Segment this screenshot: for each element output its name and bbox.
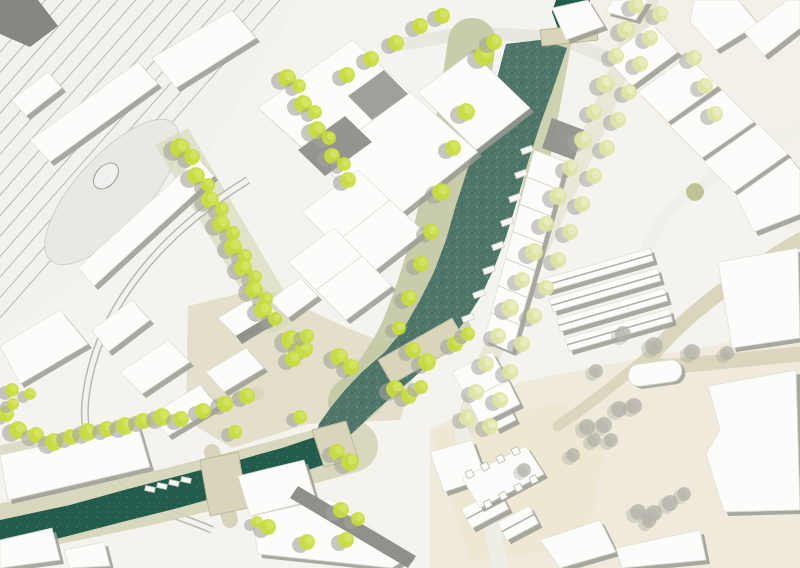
- tree-highlight: [34, 429, 42, 437]
- tree-highlight: [568, 226, 576, 234]
- tree-highlight: [342, 159, 349, 166]
- tree-highlight: [634, 0, 642, 8]
- tree: [587, 433, 601, 447]
- tree-highlight: [243, 251, 250, 258]
- tree-highlight: [411, 344, 419, 352]
- tree-highlight: [313, 107, 320, 114]
- tree-highlight: [429, 226, 437, 234]
- tree-highlight: [233, 427, 240, 434]
- tree-highlight: [346, 174, 354, 182]
- tree-highlight: [10, 385, 17, 392]
- tree-highlight: [627, 86, 635, 94]
- tree-highlight: [498, 394, 506, 402]
- tree: [677, 487, 691, 501]
- tree: [615, 326, 631, 342]
- tree: [720, 346, 734, 360]
- tree-highlight: [201, 405, 209, 413]
- tree-highlight: [241, 261, 250, 270]
- tree-highlight: [219, 217, 228, 226]
- tree-highlight: [419, 258, 427, 266]
- tree-highlight: [465, 412, 473, 420]
- tree-highlight: [330, 150, 338, 158]
- tree-highlight: [231, 240, 240, 249]
- tree-highlight: [703, 80, 711, 88]
- tree-highlight: [285, 71, 294, 80]
- tree-highlight: [339, 504, 347, 512]
- tree-highlight: [605, 142, 613, 150]
- tree: [684, 344, 700, 360]
- tree: [589, 364, 603, 378]
- tree-highlight: [624, 23, 633, 32]
- tree-highlight: [419, 382, 426, 389]
- tree-highlight: [327, 133, 334, 140]
- tree-highlight: [305, 331, 312, 338]
- tree-highlight: [349, 361, 357, 369]
- tree-highlight: [451, 142, 459, 150]
- tree: [596, 417, 612, 433]
- tree-highlight: [568, 162, 576, 170]
- tree-highlight: [220, 204, 227, 211]
- tree-highlight: [508, 366, 516, 374]
- tree: [645, 337, 663, 355]
- tree-highlight: [556, 254, 564, 262]
- tree-highlight: [345, 69, 353, 77]
- tree-highlight: [544, 282, 552, 290]
- tree-highlight: [581, 133, 590, 142]
- building: [706, 370, 800, 512]
- tree-highlight: [261, 303, 270, 312]
- tree-highlight: [638, 58, 646, 66]
- tree-highlight: [425, 355, 434, 364]
- tree-highlight: [397, 323, 404, 330]
- tree-highlight: [335, 446, 343, 454]
- tree-highlight: [603, 77, 612, 86]
- tree-highlight: [337, 350, 346, 359]
- tree: [626, 398, 642, 414]
- tree-highlight: [393, 382, 402, 391]
- tree-highlight: [520, 338, 528, 346]
- tree-highlight: [190, 151, 198, 159]
- tree-highlight: [648, 32, 656, 40]
- tree-highlight: [614, 50, 622, 58]
- tree-highlight: [658, 8, 666, 16]
- tree-highlight: [273, 314, 280, 321]
- tree-highlight: [580, 198, 588, 206]
- tree-highlight: [179, 413, 187, 421]
- tree-highlight: [520, 274, 528, 282]
- tree-highlight: [474, 386, 482, 394]
- tree-highlight: [298, 412, 305, 419]
- building: [718, 248, 800, 348]
- tree-highlight: [245, 390, 253, 398]
- tree: [686, 183, 704, 201]
- tree-highlight: [508, 301, 517, 310]
- site-plan-map: [0, 0, 800, 568]
- tree-highlight: [544, 218, 552, 226]
- tree-highlight: [532, 310, 540, 318]
- tree: [604, 433, 618, 447]
- tree-highlight: [466, 329, 473, 336]
- tree-highlight: [616, 114, 624, 122]
- tree-highlight: [407, 292, 415, 300]
- tree-highlight: [348, 455, 357, 464]
- tree-highlight: [488, 420, 496, 428]
- tree-highlight: [208, 193, 217, 202]
- tree-highlight: [492, 36, 500, 44]
- tree-highlight: [394, 37, 402, 45]
- tree-highlight: [297, 81, 304, 88]
- tree-highlight: [256, 518, 262, 524]
- tree-highlight: [440, 10, 448, 18]
- tree-highlight: [592, 170, 600, 178]
- tree-highlight: [315, 123, 324, 132]
- masterplan-canvas: [0, 0, 800, 568]
- tree-highlight: [231, 228, 238, 235]
- tree-highlight: [344, 534, 352, 542]
- tree-highlight: [206, 180, 213, 187]
- tree-highlight: [484, 358, 492, 366]
- tree-highlight: [16, 423, 25, 432]
- tree-highlight: [253, 272, 260, 279]
- tree-highlight: [252, 283, 261, 292]
- tree-highlight: [264, 294, 271, 301]
- tree: [642, 514, 656, 528]
- tree-highlight: [266, 521, 274, 529]
- tree-highlight: [12, 400, 18, 406]
- tree-highlight: [464, 105, 473, 114]
- tree-highlight: [178, 141, 188, 151]
- tree: [517, 463, 531, 477]
- tree-highlight: [439, 185, 448, 194]
- tree-highlight: [369, 53, 377, 61]
- tree: [566, 448, 580, 462]
- tree-highlight: [29, 390, 35, 396]
- tree-highlight: [301, 97, 310, 106]
- tree-highlight: [592, 106, 600, 114]
- tree-highlight: [194, 169, 203, 178]
- tree-highlight: [356, 514, 363, 521]
- tree-highlight: [223, 398, 231, 406]
- tree-highlight: [556, 189, 565, 198]
- tree-highlight: [713, 108, 721, 116]
- tree-highlight: [291, 353, 299, 361]
- tree-highlight: [496, 330, 504, 338]
- tree-highlight: [418, 20, 426, 28]
- tree-highlight: [692, 52, 700, 60]
- tree-highlight: [532, 245, 541, 254]
- tree-highlight: [305, 536, 313, 544]
